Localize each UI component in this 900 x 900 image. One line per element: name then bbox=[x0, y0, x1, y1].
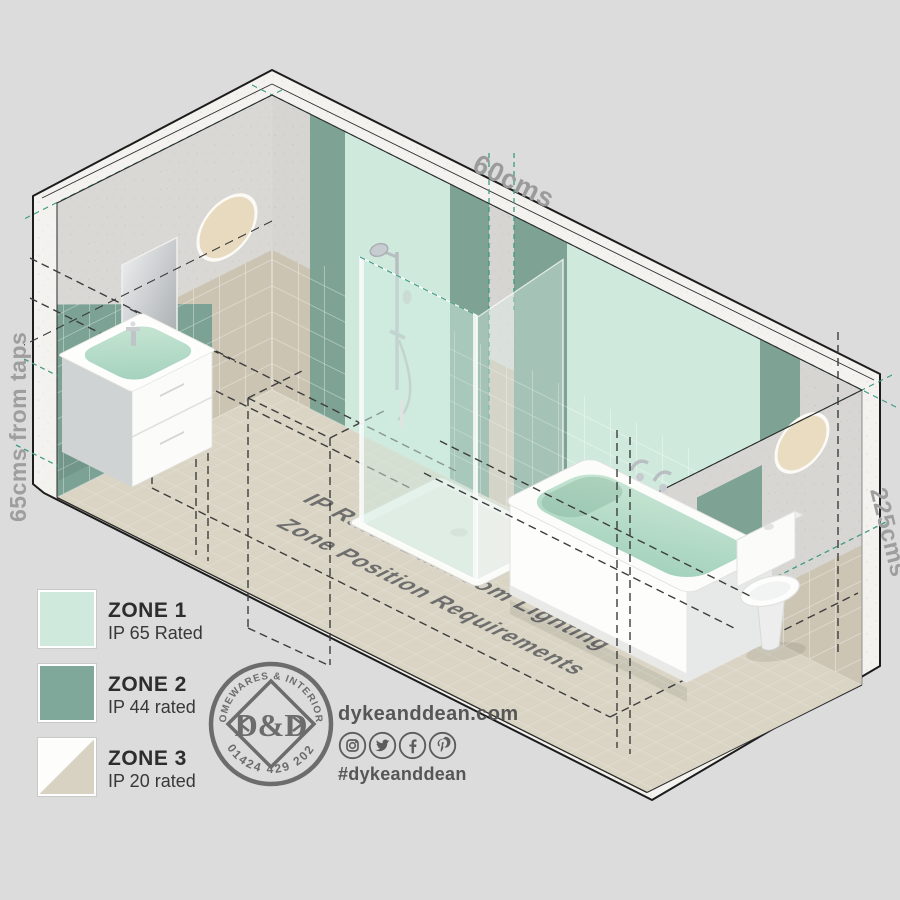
website-text: dykeanddean.com bbox=[338, 703, 519, 726]
zone-legend: ZONE 1 IP 65 Rated ZONE 2 IP 44 rated ZO… bbox=[38, 590, 203, 812]
zone2-rating: IP 44 rated bbox=[108, 696, 196, 719]
legend-row-zone2: ZONE 2 IP 44 rated bbox=[38, 664, 203, 722]
logo-monogram: D&D bbox=[235, 707, 308, 743]
pinterest-icon bbox=[428, 731, 457, 760]
dyke-and-dean-logo: D&D HOMEWARES & INTERIORS 01424 429 202 bbox=[206, 656, 336, 792]
svg-text:01424 429 202: 01424 429 202 bbox=[224, 741, 317, 776]
poster: IP Rated Bathroom Lighting Zone Position… bbox=[0, 0, 900, 900]
social-block: dykeanddean.com #dykeanddean bbox=[338, 703, 519, 785]
facebook-icon bbox=[398, 731, 427, 760]
instagram-icon bbox=[338, 731, 367, 760]
zone3-label: ZONE 3 bbox=[108, 747, 196, 770]
twitter-icon bbox=[368, 731, 397, 760]
hashtag-text: #dykeanddean bbox=[338, 764, 519, 785]
logo-phone-text: 01424 429 202 bbox=[224, 741, 317, 776]
legend-row-zone1: ZONE 1 IP 65 Rated bbox=[38, 590, 203, 648]
zone1-rating: IP 65 Rated bbox=[108, 622, 203, 645]
zone3-swatch bbox=[38, 738, 96, 796]
zone1-label: ZONE 1 bbox=[108, 599, 203, 622]
zone3-rating: IP 20 rated bbox=[108, 770, 196, 793]
zone1-swatch bbox=[38, 590, 96, 648]
dim-left-label: 65cms from taps bbox=[5, 332, 31, 522]
shower-door-handle bbox=[400, 399, 404, 429]
zone2-label: ZONE 2 bbox=[108, 673, 196, 696]
legend-row-zone3: ZONE 3 IP 20 rated bbox=[38, 738, 203, 796]
zone2-swatch bbox=[38, 664, 96, 722]
